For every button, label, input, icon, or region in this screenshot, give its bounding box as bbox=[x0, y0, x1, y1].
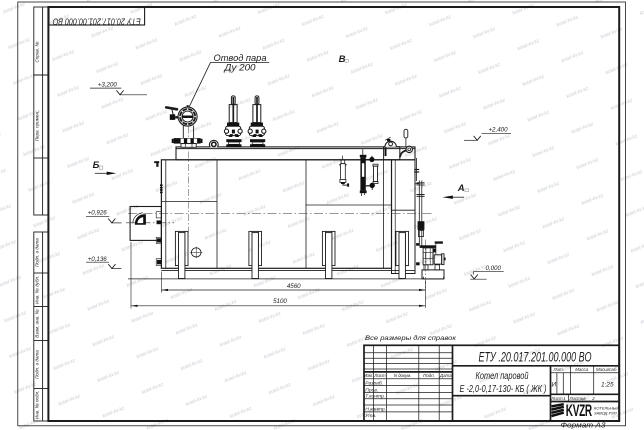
svg-text:Котел паровой: Котел паровой bbox=[476, 371, 529, 382]
svg-text:Все размеры для справок: Все размеры для справок bbox=[365, 334, 457, 342]
svg-text:А: А bbox=[457, 183, 465, 194]
svg-text:Листов: Листов bbox=[569, 396, 587, 401]
svg-text:Подп.: Подп. bbox=[423, 373, 435, 378]
svg-text:0,000: 0,000 bbox=[485, 265, 501, 272]
svg-text:Формат А3: Формат А3 bbox=[561, 421, 607, 430]
svg-text:Масса: Масса bbox=[575, 367, 589, 372]
svg-text:Подп. и дата: Подп. и дата bbox=[35, 350, 40, 379]
svg-text:5100: 5100 bbox=[273, 298, 287, 305]
svg-text:Лист: Лист bbox=[373, 373, 386, 378]
svg-text:Утв.: Утв. bbox=[365, 413, 376, 419]
svg-text:И: И bbox=[552, 381, 557, 388]
svg-text:1:25: 1:25 bbox=[601, 382, 614, 389]
svg-text:Н.контр.: Н.контр. bbox=[365, 407, 386, 413]
svg-text:KVZR: KVZR bbox=[566, 402, 592, 420]
svg-text:Справ. №: Справ. № bbox=[35, 42, 40, 63]
svg-text:Инв. № подл.: Инв. № подл. bbox=[35, 391, 40, 420]
svg-text:Масштаб: Масштаб bbox=[596, 367, 617, 372]
svg-text:+2,400: +2,400 bbox=[488, 126, 508, 133]
svg-text:+3,200: +3,200 bbox=[98, 82, 118, 89]
svg-text:N докум.: N докум. bbox=[394, 373, 412, 378]
svg-text:2: 2 bbox=[591, 396, 595, 401]
svg-text:ЕТУ .20.017.201.00.000 ВО: ЕТУ .20.017.201.00.000 ВО bbox=[479, 349, 592, 364]
svg-text:4560: 4560 bbox=[287, 283, 301, 290]
svg-text:Перв. примен.: Перв. примен. bbox=[35, 111, 40, 142]
svg-text:Е -2,0-0,17-130- КБ ( ЖК ): Е -2,0-0,17-130- КБ ( ЖК ) bbox=[460, 384, 547, 395]
svg-text:Ду 200: Ду 200 bbox=[223, 63, 255, 73]
svg-text:Лит.: Лит. bbox=[553, 367, 564, 372]
svg-text:Пров.: Пров. bbox=[365, 388, 378, 394]
svg-text:Инв. № дубл.: Инв. № дубл. bbox=[35, 276, 40, 304]
svg-text:+0,926: +0,926 bbox=[88, 210, 108, 217]
svg-text:Разраб.: Разраб. bbox=[365, 381, 383, 387]
svg-text:Изм.: Изм. bbox=[364, 373, 373, 378]
svg-text:Подп. и дата: Подп. и дата bbox=[35, 238, 40, 267]
svg-text:Б: Б bbox=[93, 160, 100, 171]
svg-text:В: В bbox=[339, 54, 346, 65]
svg-text:Лист: Лист bbox=[550, 396, 563, 401]
svg-text:ЗАВОД РЗП: ЗАВОД РЗП bbox=[594, 411, 617, 416]
svg-text:Взам. инв. №: Взам. инв. № bbox=[35, 309, 40, 337]
svg-text:ЕТУ 20.017.201.00.000 ВО: ЕТУ 20.017.201.00.000 ВО bbox=[53, 16, 141, 26]
svg-text:Т.контр.: Т.контр. bbox=[365, 394, 385, 400]
svg-text:Дата: Дата bbox=[439, 373, 452, 378]
